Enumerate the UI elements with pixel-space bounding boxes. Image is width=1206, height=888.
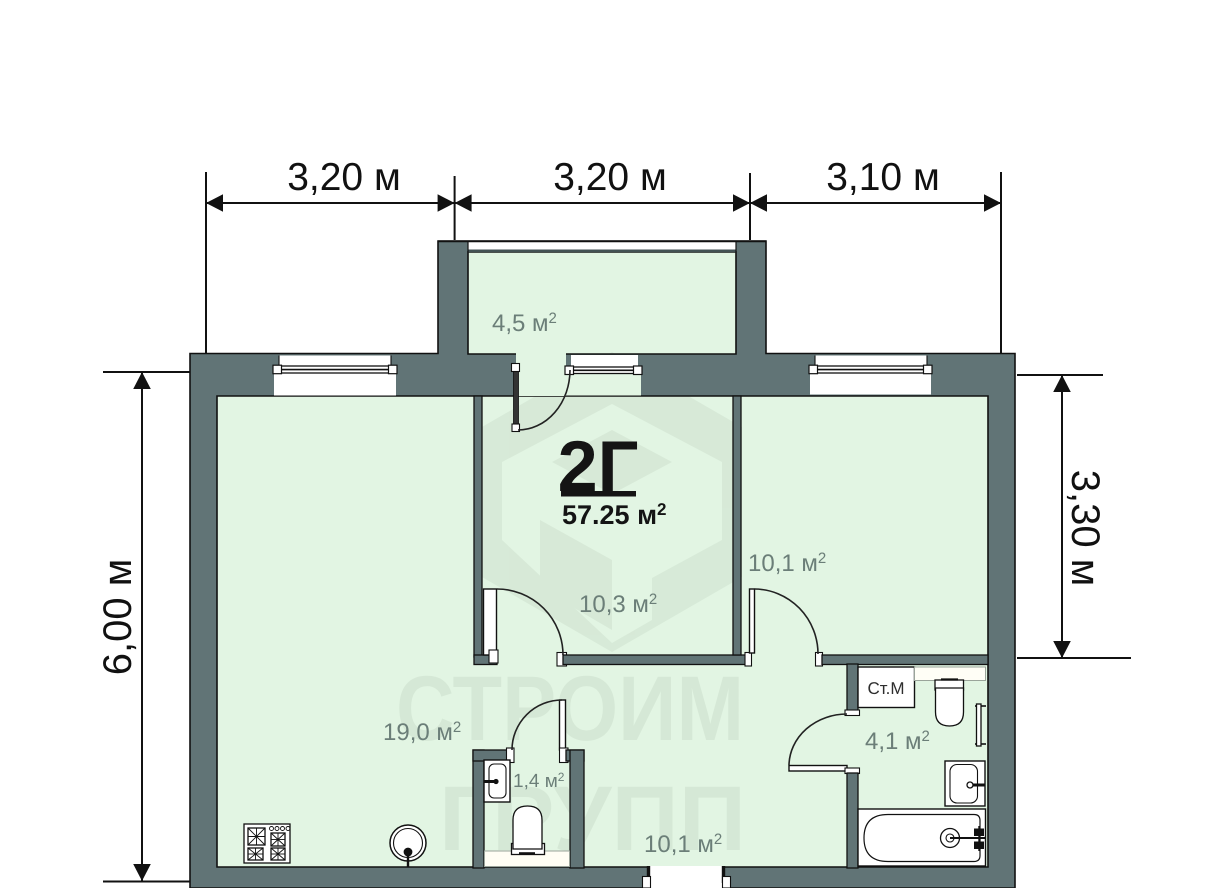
svg-text:3,30 м: 3,30 м: [1063, 470, 1107, 586]
svg-text:57.25 м2: 57.25 м2: [562, 500, 667, 530]
svg-text:1,4 м2: 1,4 м2: [513, 770, 565, 792]
svg-text:3,20 м: 3,20 м: [287, 156, 401, 199]
svg-text:10,1 м2: 10,1 м2: [748, 550, 826, 577]
svg-text:10,3 м2: 10,3 м2: [579, 591, 657, 618]
svg-text:Ст.М: Ст.М: [867, 679, 904, 698]
svg-text:3,20 м: 3,20 м: [553, 156, 667, 199]
svg-text:3,10 м: 3,10 м: [826, 156, 940, 199]
svg-text:10,1 м2: 10,1 м2: [644, 831, 722, 858]
svg-text:4,1 м2: 4,1 м2: [865, 728, 930, 755]
svg-text:19,0 м2: 19,0 м2: [383, 719, 461, 746]
svg-text:4,5 м2: 4,5 м2: [492, 310, 557, 337]
svg-text:6,00 м: 6,00 м: [96, 559, 140, 675]
